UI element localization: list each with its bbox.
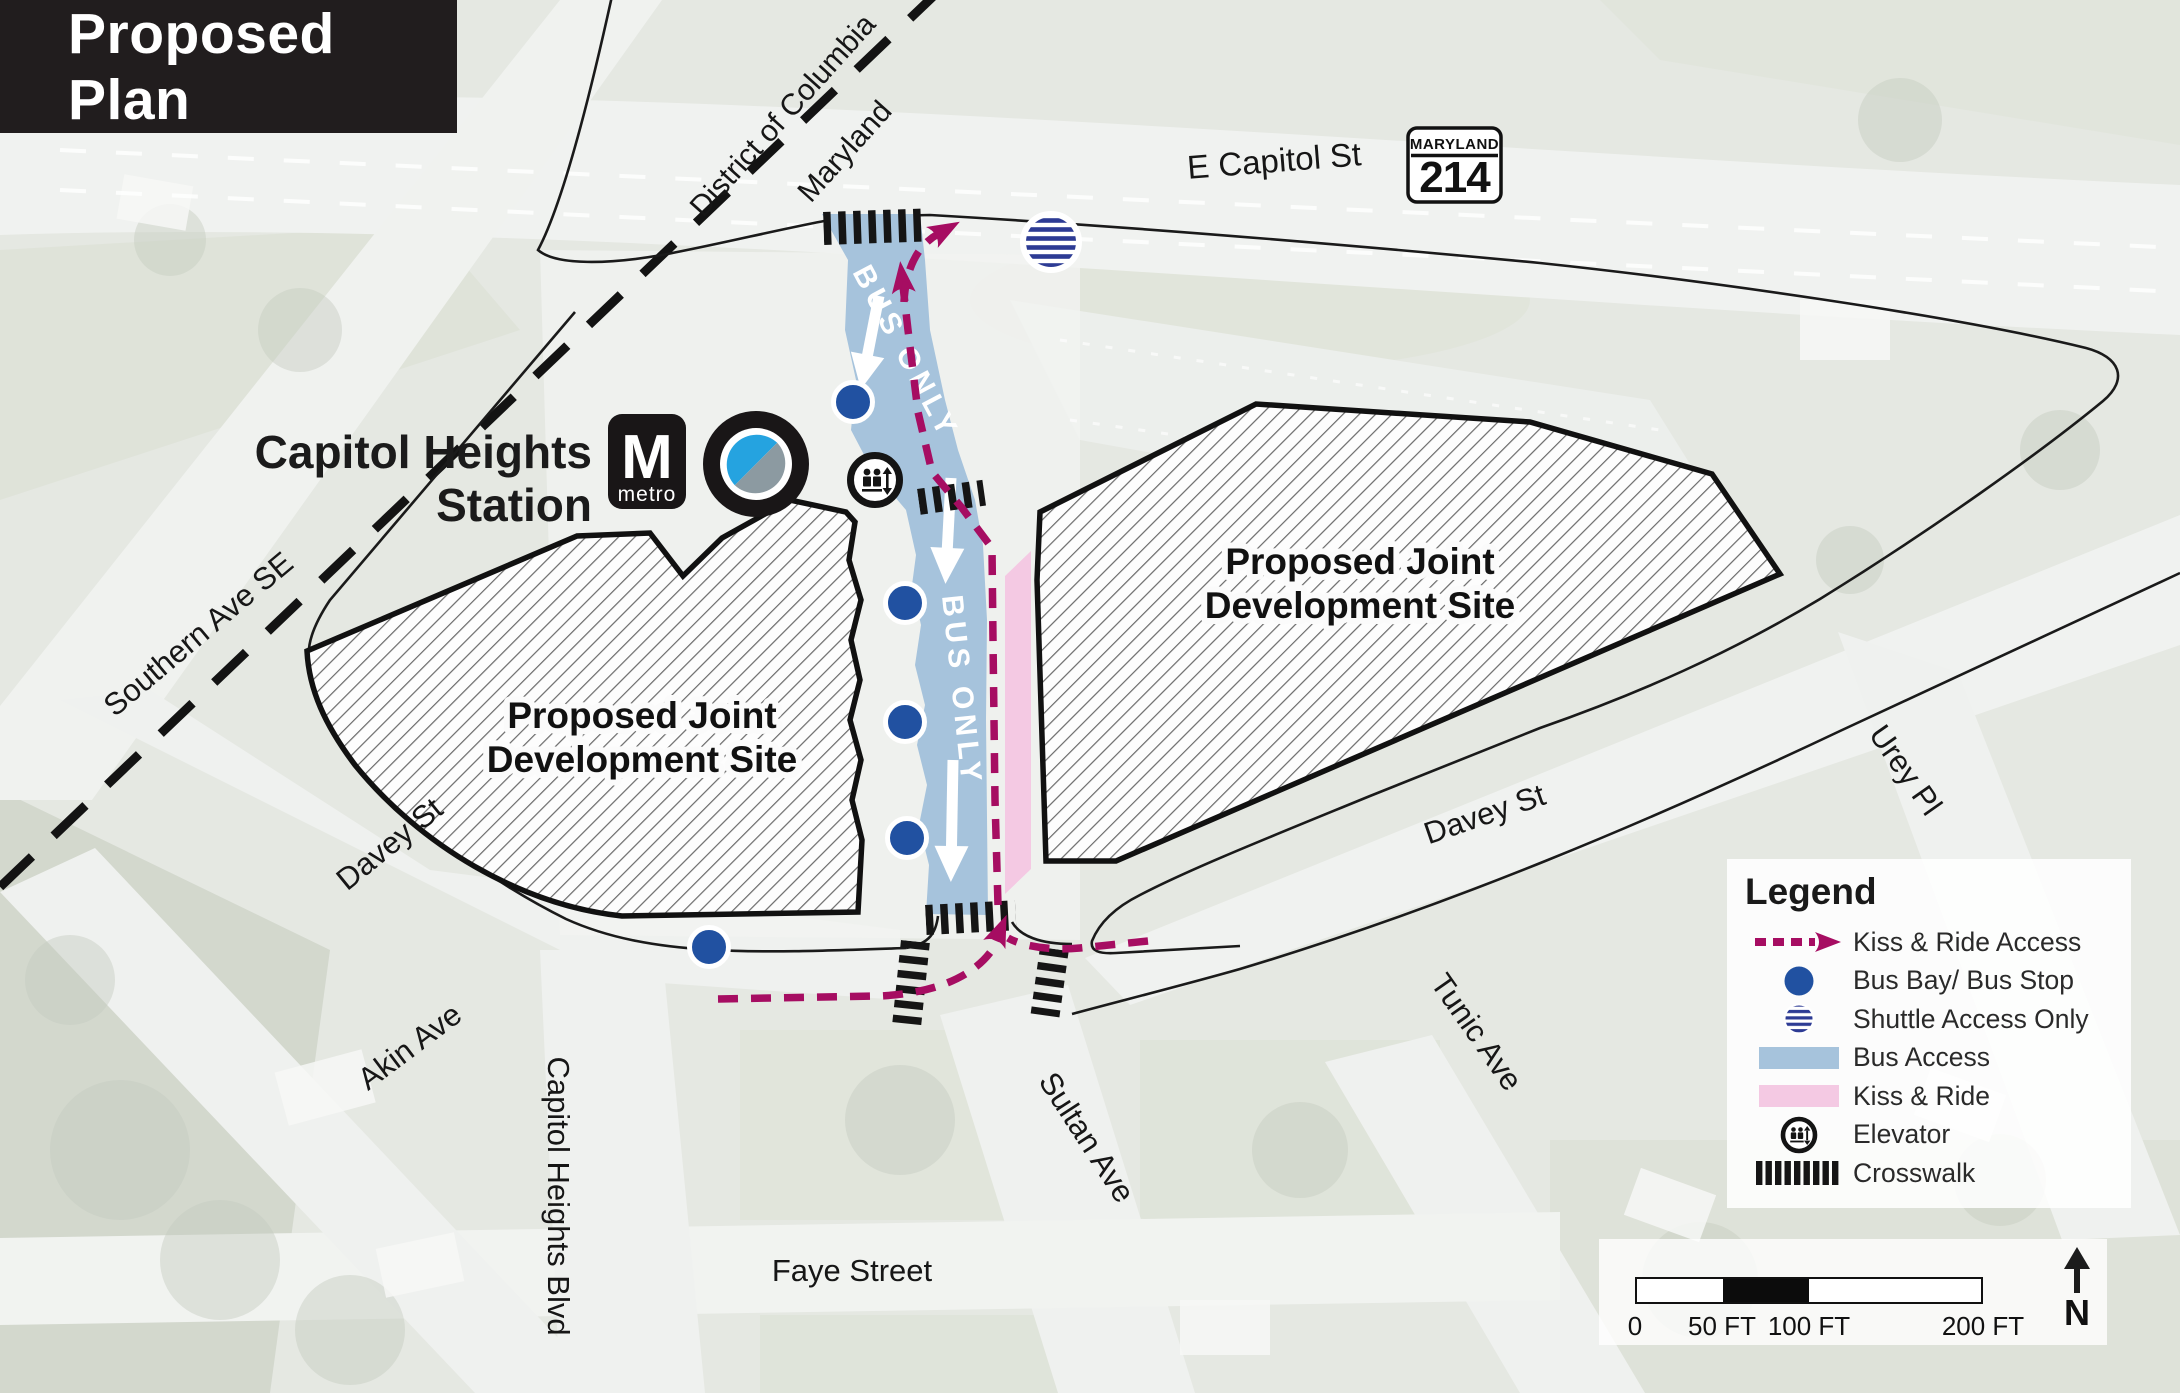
legend-label: Kiss & Ride Access (1853, 927, 2081, 958)
elevator-icon (851, 456, 900, 505)
metro-word: metro (618, 483, 677, 506)
street-label-faye-street: Faye Street (772, 1253, 933, 1288)
legend-panel: Legend Kiss & Ride Access Bus Bay/ Bus S… (1727, 859, 2131, 1208)
scale-tick-200: 200 FT (1942, 1311, 2024, 1342)
legend-row-bus-access: Bus Access (1745, 1039, 2113, 1078)
north-label: N (2051, 1295, 2103, 1331)
scale-tick-100: 100 FT (1768, 1311, 1850, 1342)
scale-tick-50: 50 FT (1688, 1311, 1756, 1342)
kiss-ride-access-arrow-icon (1745, 930, 1853, 954)
scale-tick-0: 0 (1628, 1311, 1642, 1342)
left-site-label-line1: Proposed Joint (507, 695, 776, 736)
legend-row-kiss-ride-access: Kiss & Ride Access (1745, 923, 2113, 962)
page-title: Proposed Plan (0, 1, 457, 133)
legend-label: Bus Access (1853, 1042, 1990, 1073)
legend-row-crosswalk: Crosswalk (1745, 1154, 2113, 1193)
station-name-line1: Capitol Heights (255, 426, 592, 478)
elevator-icon (1745, 1115, 1853, 1155)
left-site-label-line2: Development Site (487, 739, 797, 780)
station-name-line2: Station (436, 479, 592, 531)
kiss-and-ride-strip (1005, 551, 1031, 894)
crosswalk-icon (1745, 1159, 1853, 1187)
bus-bay-dot-icon (1745, 964, 1853, 998)
kiss-ride-swatch-icon (1745, 1084, 1853, 1108)
legend-row-bus-bay: Bus Bay/ Bus Stop (1745, 962, 2113, 1001)
title-banner: Proposed Plan (0, 0, 457, 133)
legend-row-shuttle: Shuttle Access Only (1745, 1000, 2113, 1039)
right-site-label-line2: Development Site (1205, 585, 1515, 626)
metro-m-letter: M (621, 423, 673, 492)
scale-bar-panel: 0 50 FT 100 FT 200 FT N (1599, 1239, 2107, 1345)
right-site-label-line1: Proposed Joint (1225, 541, 1494, 582)
shuttle-access-dot (1023, 214, 1079, 270)
legend-title: Legend (1745, 871, 2113, 913)
legend-row-kiss-ride: Kiss & Ride (1745, 1077, 2113, 1116)
street-label-capitol-heights-blvd: Capitol Heights Blvd (541, 1056, 576, 1335)
shield-number: 214 (1419, 153, 1491, 202)
legend-label: Crosswalk (1853, 1158, 1975, 1189)
legend-label: Shuttle Access Only (1853, 1004, 2089, 1035)
shuttle-striped-dot-icon (1745, 1002, 1853, 1036)
legend-label: Elevator (1853, 1119, 1950, 1150)
station-circle-icon (703, 411, 809, 517)
north-arrow-icon: N (2051, 1247, 2103, 1331)
legend-row-elevator: Elevator (1745, 1116, 2113, 1155)
legend-label: Kiss & Ride (1853, 1081, 1990, 1112)
shield-state-label: MARYLAND (1410, 136, 1499, 153)
bus-access-swatch-icon (1745, 1046, 1853, 1070)
legend-label: Bus Bay/ Bus Stop (1853, 965, 2074, 996)
proposed-plan-map: BUS ONLY BUS ONLY Proposed Joint Develop… (0, 0, 2180, 1393)
scale-bar (1635, 1277, 1983, 1304)
maryland-214-shield: MARYLAND 214 (1408, 128, 1501, 202)
metro-logo: M metro (608, 414, 686, 509)
